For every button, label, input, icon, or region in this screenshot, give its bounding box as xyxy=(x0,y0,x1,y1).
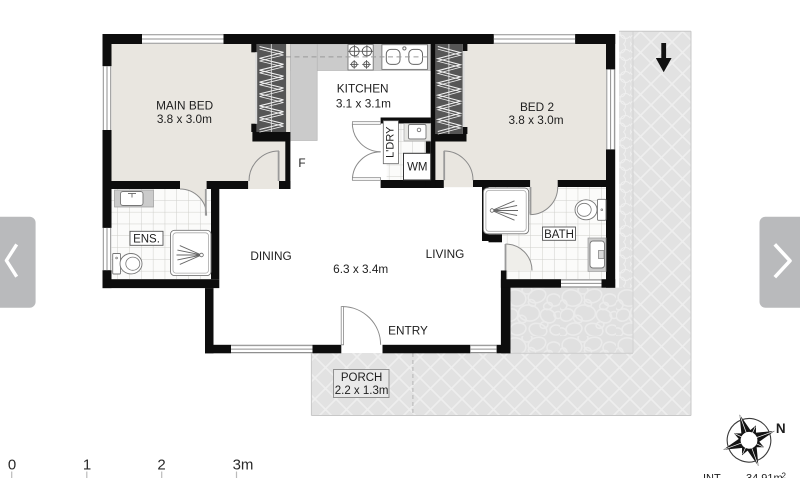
svg-text:INT: INT xyxy=(703,473,721,478)
svg-text:3m: 3m xyxy=(233,457,254,474)
svg-text:MAIN BED: MAIN BED xyxy=(156,99,213,113)
svg-text:3.1 x 3.1m: 3.1 x 3.1m xyxy=(336,97,391,111)
svg-text:F: F xyxy=(298,156,305,170)
svg-text:3.8 x 3.0m: 3.8 x 3.0m xyxy=(157,112,212,126)
svg-text:0: 0 xyxy=(8,457,16,474)
svg-text:L'DRY: L'DRY xyxy=(385,126,397,158)
svg-text:34.91m: 34.91m xyxy=(746,473,783,478)
svg-text:ENTRY: ENTRY xyxy=(388,324,428,338)
svg-text:KITCHEN: KITCHEN xyxy=(337,82,389,96)
svg-text:BED 2: BED 2 xyxy=(520,100,554,114)
svg-text:3.8 x 3.0m: 3.8 x 3.0m xyxy=(508,113,563,127)
svg-text:WM: WM xyxy=(407,162,427,174)
svg-text:6.3 x 3.4m: 6.3 x 3.4m xyxy=(333,262,388,276)
svg-text:LIVING: LIVING xyxy=(426,247,465,261)
svg-text:2.2 x 1.3m: 2.2 x 1.3m xyxy=(335,385,389,397)
svg-text:1: 1 xyxy=(83,457,91,474)
svg-text:PORCH: PORCH xyxy=(341,372,383,384)
svg-text:2: 2 xyxy=(157,457,165,474)
svg-text:DINING: DINING xyxy=(250,249,291,263)
svg-text:N: N xyxy=(776,421,786,436)
svg-text:=: = xyxy=(730,474,736,478)
svg-text:ENS.: ENS. xyxy=(133,233,160,245)
svg-text:BATH: BATH xyxy=(544,229,574,241)
svg-text:2: 2 xyxy=(782,472,787,479)
